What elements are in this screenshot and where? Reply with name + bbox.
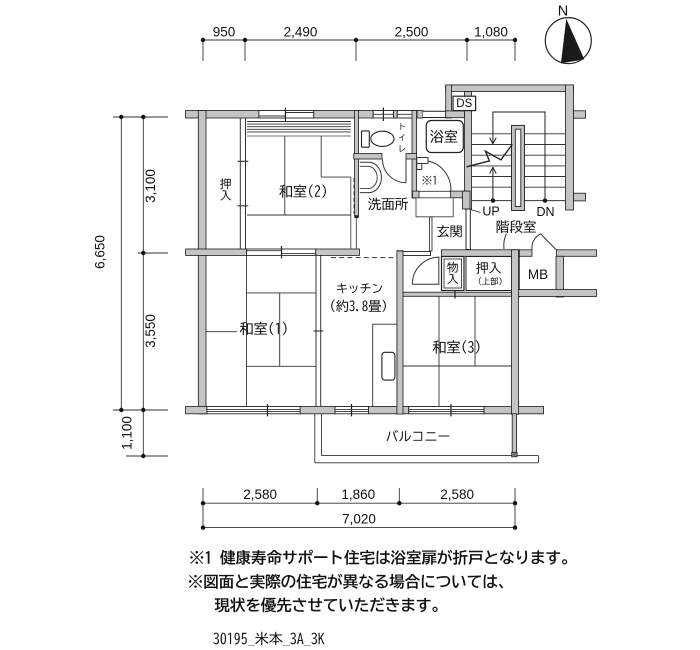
svg-text:3,100: 3,100 bbox=[143, 169, 158, 203]
svg-text:2,580: 2,580 bbox=[243, 487, 277, 502]
svg-text:1,100: 1,100 bbox=[120, 416, 135, 450]
svg-text:1,080: 1,080 bbox=[474, 25, 508, 40]
svg-text:2,580: 2,580 bbox=[440, 487, 474, 502]
svg-text:3,550: 3,550 bbox=[143, 314, 158, 348]
svg-text:DN: DN bbox=[536, 205, 554, 219]
svg-text:6,650: 6,650 bbox=[93, 235, 108, 269]
svg-text:950: 950 bbox=[213, 25, 236, 40]
svg-text:2,490: 2,490 bbox=[284, 25, 318, 40]
svg-text:2,500: 2,500 bbox=[395, 25, 429, 40]
svg-text:7,020: 7,020 bbox=[342, 512, 376, 527]
svg-text:UP: UP bbox=[482, 204, 499, 218]
svg-text:1,860: 1,860 bbox=[341, 487, 375, 502]
svg-text:DS: DS bbox=[456, 98, 472, 110]
svg-text:MB: MB bbox=[528, 267, 548, 282]
